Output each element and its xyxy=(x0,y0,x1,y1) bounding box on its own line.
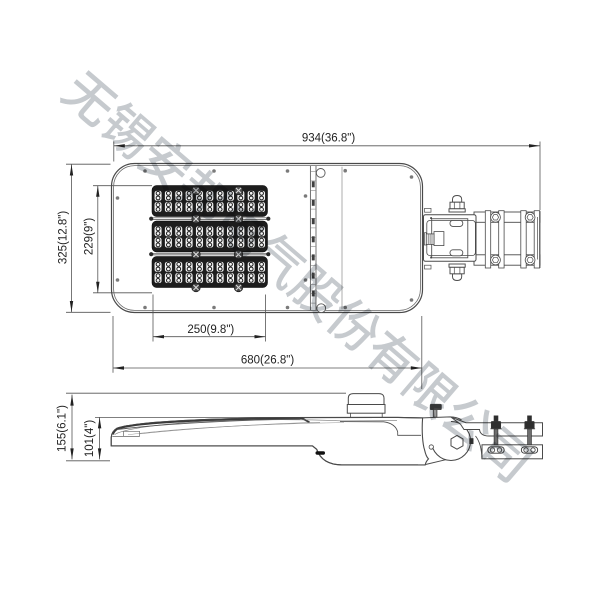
svg-text:250(9.8"): 250(9.8") xyxy=(187,324,234,336)
svg-text:325(12.8"): 325(12.8") xyxy=(58,211,70,264)
svg-text:680(26.8"): 680(26.8") xyxy=(241,354,294,366)
svg-text:934(36.8"): 934(36.8") xyxy=(302,133,355,145)
svg-text:229(9"): 229(9") xyxy=(84,218,96,255)
svg-text:155(6.1"): 155(6.1") xyxy=(57,405,69,452)
svg-text:101(4"): 101(4") xyxy=(84,420,96,457)
